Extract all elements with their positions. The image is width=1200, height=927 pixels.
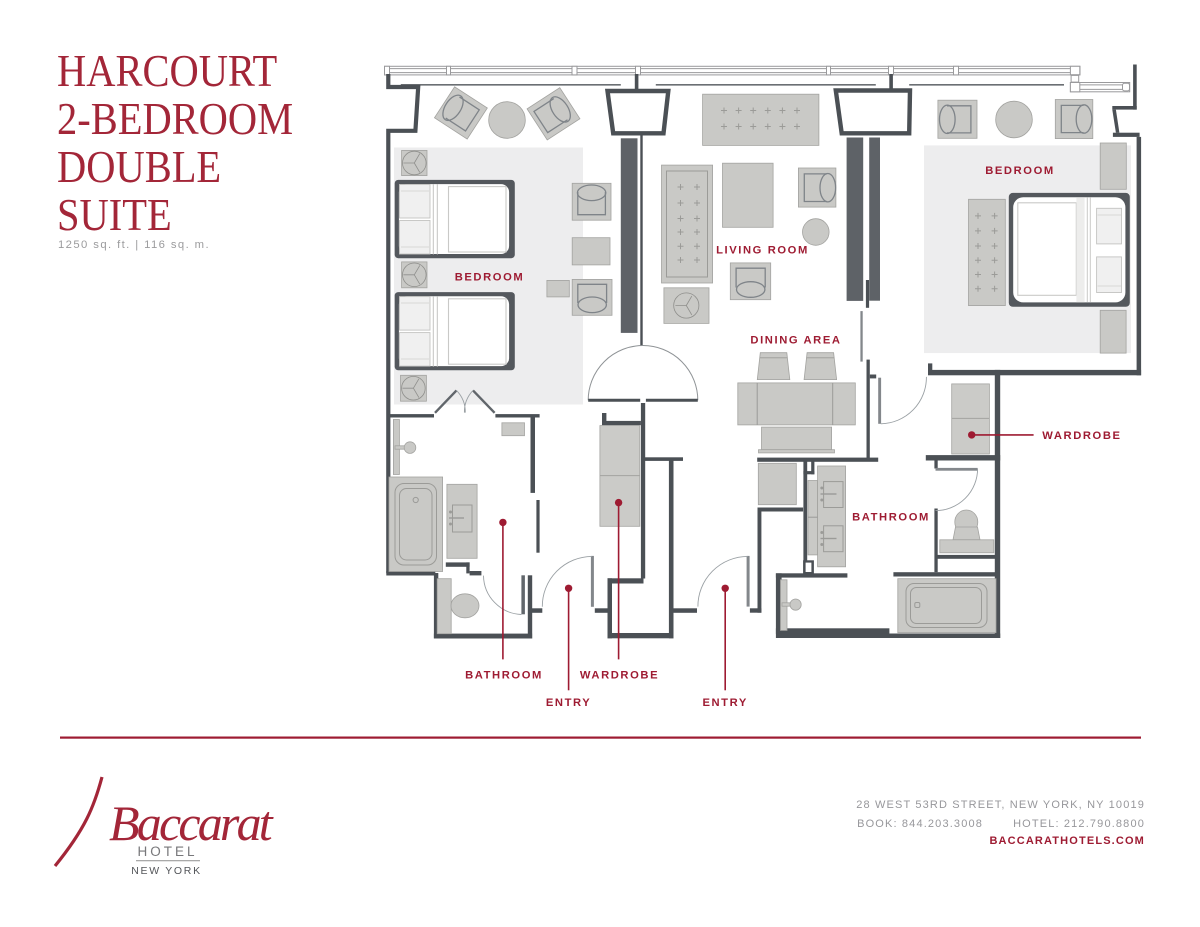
svg-text:BEDROOM: BEDROOM xyxy=(985,165,1055,177)
svg-text:Baccarat: Baccarat xyxy=(109,795,274,851)
svg-text:NEW YORK: NEW YORK xyxy=(131,865,202,877)
svg-text:BEDROOM: BEDROOM xyxy=(455,272,525,284)
svg-text:LIVING ROOM: LIVING ROOM xyxy=(716,245,809,257)
svg-text:ENTRY: ENTRY xyxy=(702,697,748,709)
svg-text:WARDROBE: WARDROBE xyxy=(1042,430,1121,442)
svg-text:HOTEL: HOTEL xyxy=(137,844,197,859)
svg-text:BATHROOM: BATHROOM xyxy=(852,512,930,524)
svg-text:WARDROBE: WARDROBE xyxy=(580,669,659,681)
svg-text:ENTRY: ENTRY xyxy=(546,697,592,709)
svg-text:BATHROOM: BATHROOM xyxy=(465,669,543,681)
svg-text:DINING AREA: DINING AREA xyxy=(750,335,841,347)
